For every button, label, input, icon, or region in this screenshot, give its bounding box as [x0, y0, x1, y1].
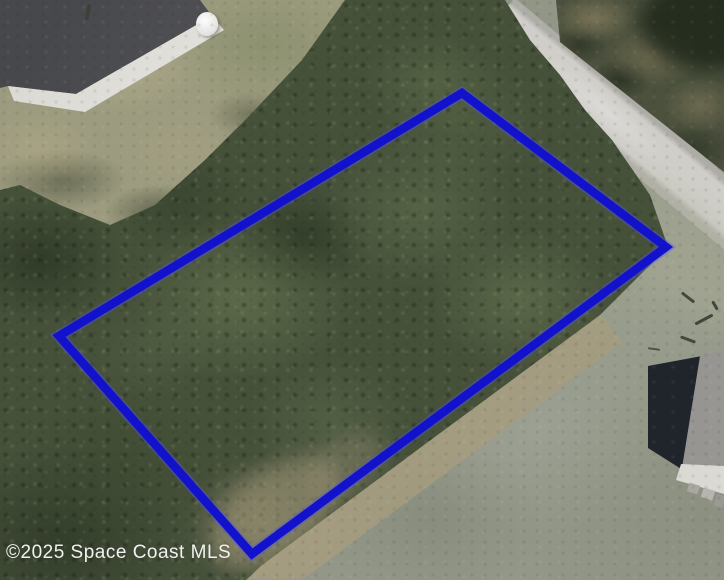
aerial-photo: ©2025 Space Coast MLS	[0, 0, 724, 580]
mls-watermark: ©2025 Space Coast MLS	[6, 542, 231, 564]
white-tank	[196, 12, 218, 36]
